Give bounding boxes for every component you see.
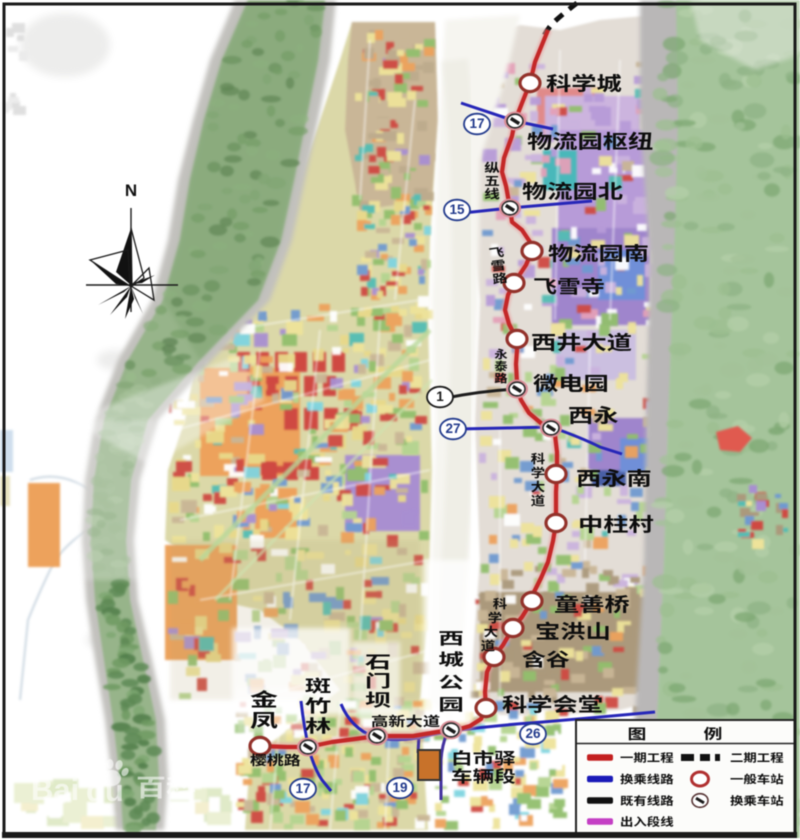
svg-text:路: 路 bbox=[491, 268, 509, 288]
svg-text:N: N bbox=[125, 181, 137, 200]
svg-text:路: 路 bbox=[494, 370, 507, 385]
svg-text:百科: 百科 bbox=[136, 768, 196, 803]
svg-text:物流园枢纽: 物流园枢纽 bbox=[527, 127, 653, 154]
svg-text:二期工程: 二期工程 bbox=[730, 749, 784, 765]
svg-text:樱桃路: 樱桃路 bbox=[250, 751, 301, 769]
svg-text:物流园南: 物流园南 bbox=[548, 239, 649, 266]
svg-text:西永南: 西永南 bbox=[576, 464, 652, 491]
svg-text:换乘车站: 换乘车站 bbox=[730, 792, 784, 808]
svg-text:线: 线 bbox=[484, 185, 500, 202]
svg-text:西永: 西永 bbox=[568, 401, 619, 428]
svg-text:道: 道 bbox=[531, 491, 545, 508]
svg-text:西: 西 bbox=[438, 626, 464, 649]
svg-text:26: 26 bbox=[525, 726, 541, 741]
svg-text:公: 公 bbox=[438, 670, 464, 693]
svg-text:15: 15 bbox=[449, 202, 465, 217]
svg-text:车辆段: 车辆段 bbox=[451, 764, 516, 787]
svg-text:高新大道: 高新大道 bbox=[371, 712, 440, 731]
svg-text:出入段线: 出入段线 bbox=[620, 813, 674, 829]
svg-text:西井大道: 西井大道 bbox=[531, 328, 632, 355]
svg-text:含谷: 含谷 bbox=[522, 646, 570, 672]
svg-text:27: 27 bbox=[445, 421, 460, 436]
svg-text:林: 林 bbox=[305, 713, 331, 738]
svg-text:微电园: 微电园 bbox=[533, 369, 609, 396]
svg-text:一期工程: 一期工程 bbox=[620, 749, 674, 765]
svg-text:坝: 坝 bbox=[365, 687, 391, 712]
svg-text:既有线路: 既有线路 bbox=[620, 792, 674, 808]
svg-text:园: 园 bbox=[438, 692, 464, 715]
svg-text:凤: 凤 bbox=[250, 706, 279, 732]
svg-text:中柱村: 中柱村 bbox=[578, 510, 654, 537]
svg-text:一般车站: 一般车站 bbox=[730, 770, 784, 786]
svg-text:科学城: 科学城 bbox=[546, 69, 622, 96]
svg-text:图: 图 bbox=[628, 723, 647, 743]
svg-text:物流园北: 物流园北 bbox=[522, 177, 623, 204]
svg-text:17: 17 bbox=[295, 781, 310, 796]
svg-text:童善桥: 童善桥 bbox=[554, 590, 630, 617]
svg-text:飞雪寺: 飞雪寺 bbox=[533, 273, 605, 299]
svg-text:换乘线路: 换乘线路 bbox=[620, 770, 674, 786]
svg-text:17: 17 bbox=[469, 116, 484, 131]
svg-text:Bai: Bai bbox=[31, 772, 79, 807]
svg-text:例: 例 bbox=[704, 723, 723, 743]
svg-text:1: 1 bbox=[436, 389, 444, 404]
svg-text:道: 道 bbox=[481, 636, 495, 653]
svg-text:科学会堂: 科学会堂 bbox=[502, 690, 603, 717]
svg-text:宝洪山: 宝洪山 bbox=[535, 617, 611, 644]
svg-text:城: 城 bbox=[438, 647, 464, 670]
svg-text:19: 19 bbox=[392, 780, 407, 795]
